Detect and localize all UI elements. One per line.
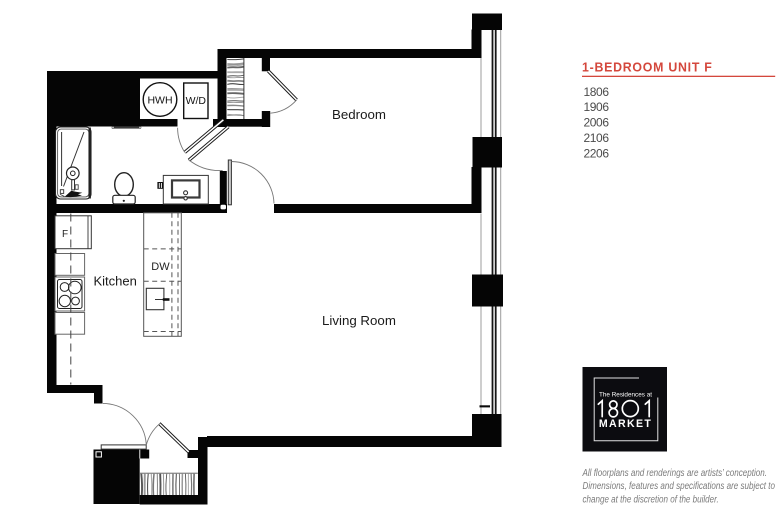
svg-text:W/D: W/D <box>186 95 207 107</box>
svg-text:Kitchen: Kitchen <box>94 274 137 289</box>
svg-text:1-BEDROOM UNIT F: 1-BEDROOM UNIT F <box>582 60 713 75</box>
svg-text:change at the discretion of th: change at the discretion of the builder. <box>583 494 719 505</box>
svg-text:2006: 2006 <box>584 116 610 130</box>
svg-text:MARKET: MARKET <box>599 418 652 430</box>
svg-text:2206: 2206 <box>584 146 610 160</box>
svg-text:1906: 1906 <box>584 100 610 114</box>
svg-text:Bedroom: Bedroom <box>332 107 386 122</box>
svg-text:DW: DW <box>151 261 170 273</box>
svg-text:HWH: HWH <box>147 94 172 106</box>
svg-text:The Residences at: The Residences at <box>599 392 652 399</box>
svg-text:Living Room: Living Room <box>322 313 396 328</box>
svg-text:F: F <box>62 229 68 240</box>
svg-text:Dimensions, features and speci: Dimensions, features and specifications … <box>583 480 776 491</box>
svg-text:All floorplans and renderings: All floorplans and renderings are artist… <box>582 467 767 478</box>
svg-text:2106: 2106 <box>584 131 610 145</box>
svg-text:1806: 1806 <box>584 85 610 99</box>
